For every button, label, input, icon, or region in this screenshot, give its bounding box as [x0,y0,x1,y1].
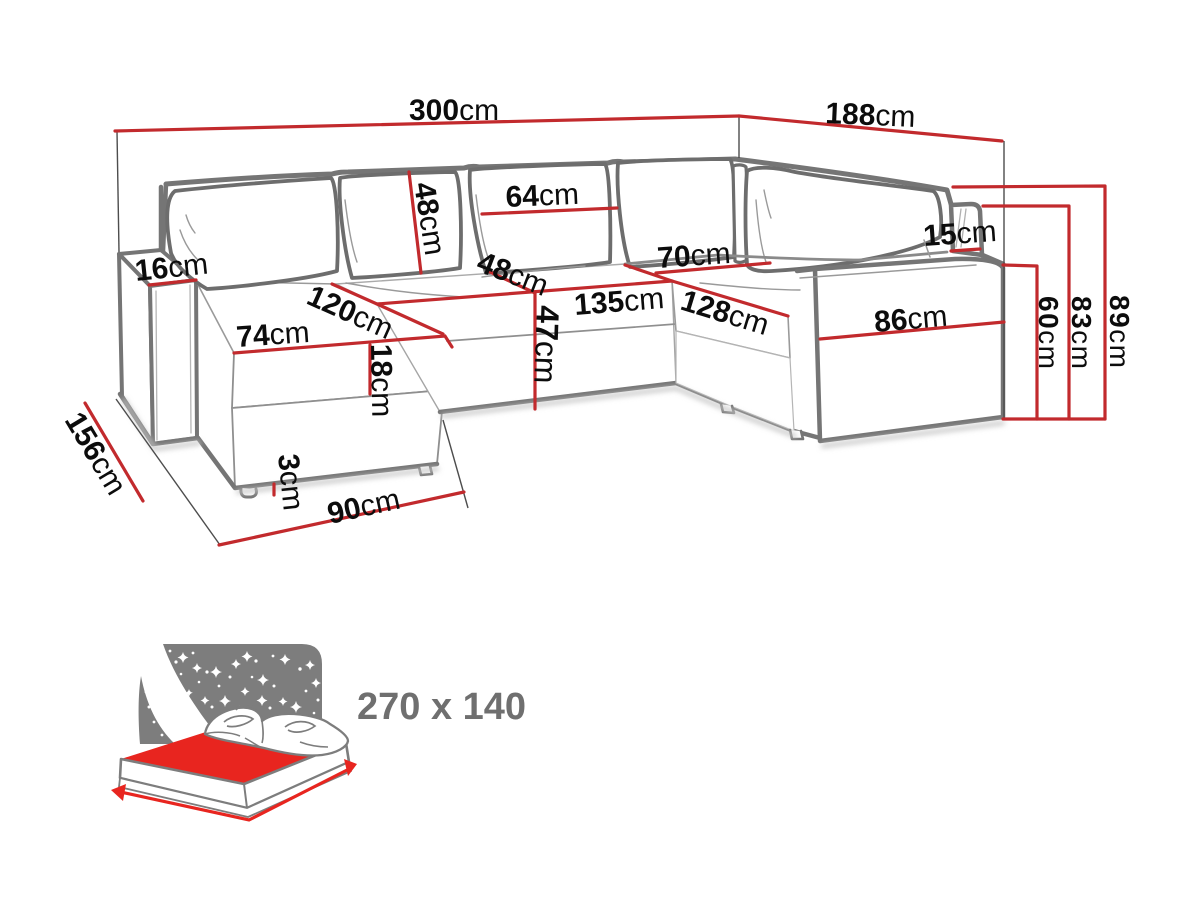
svg-text:86cm: 86cm [873,300,949,339]
svg-text:74cm: 74cm [235,316,310,354]
svg-text:3cm: 3cm [271,452,310,512]
svg-text:89cm: 89cm [1104,295,1135,369]
svg-text:188cm: 188cm [825,97,916,134]
svg-text:270 x 140: 270 x 140 [357,686,526,728]
svg-text:15cm: 15cm [922,215,997,253]
svg-text:60cm: 60cm [1033,296,1064,370]
svg-text:300cm: 300cm [409,94,499,127]
svg-text:70cm: 70cm [656,237,731,275]
svg-text:64cm: 64cm [505,178,580,214]
svg-text:18cm: 18cm [364,344,398,418]
svg-text:135cm: 135cm [573,282,665,322]
svg-text:83cm: 83cm [1066,296,1097,370]
svg-text:47cm: 47cm [527,305,566,384]
